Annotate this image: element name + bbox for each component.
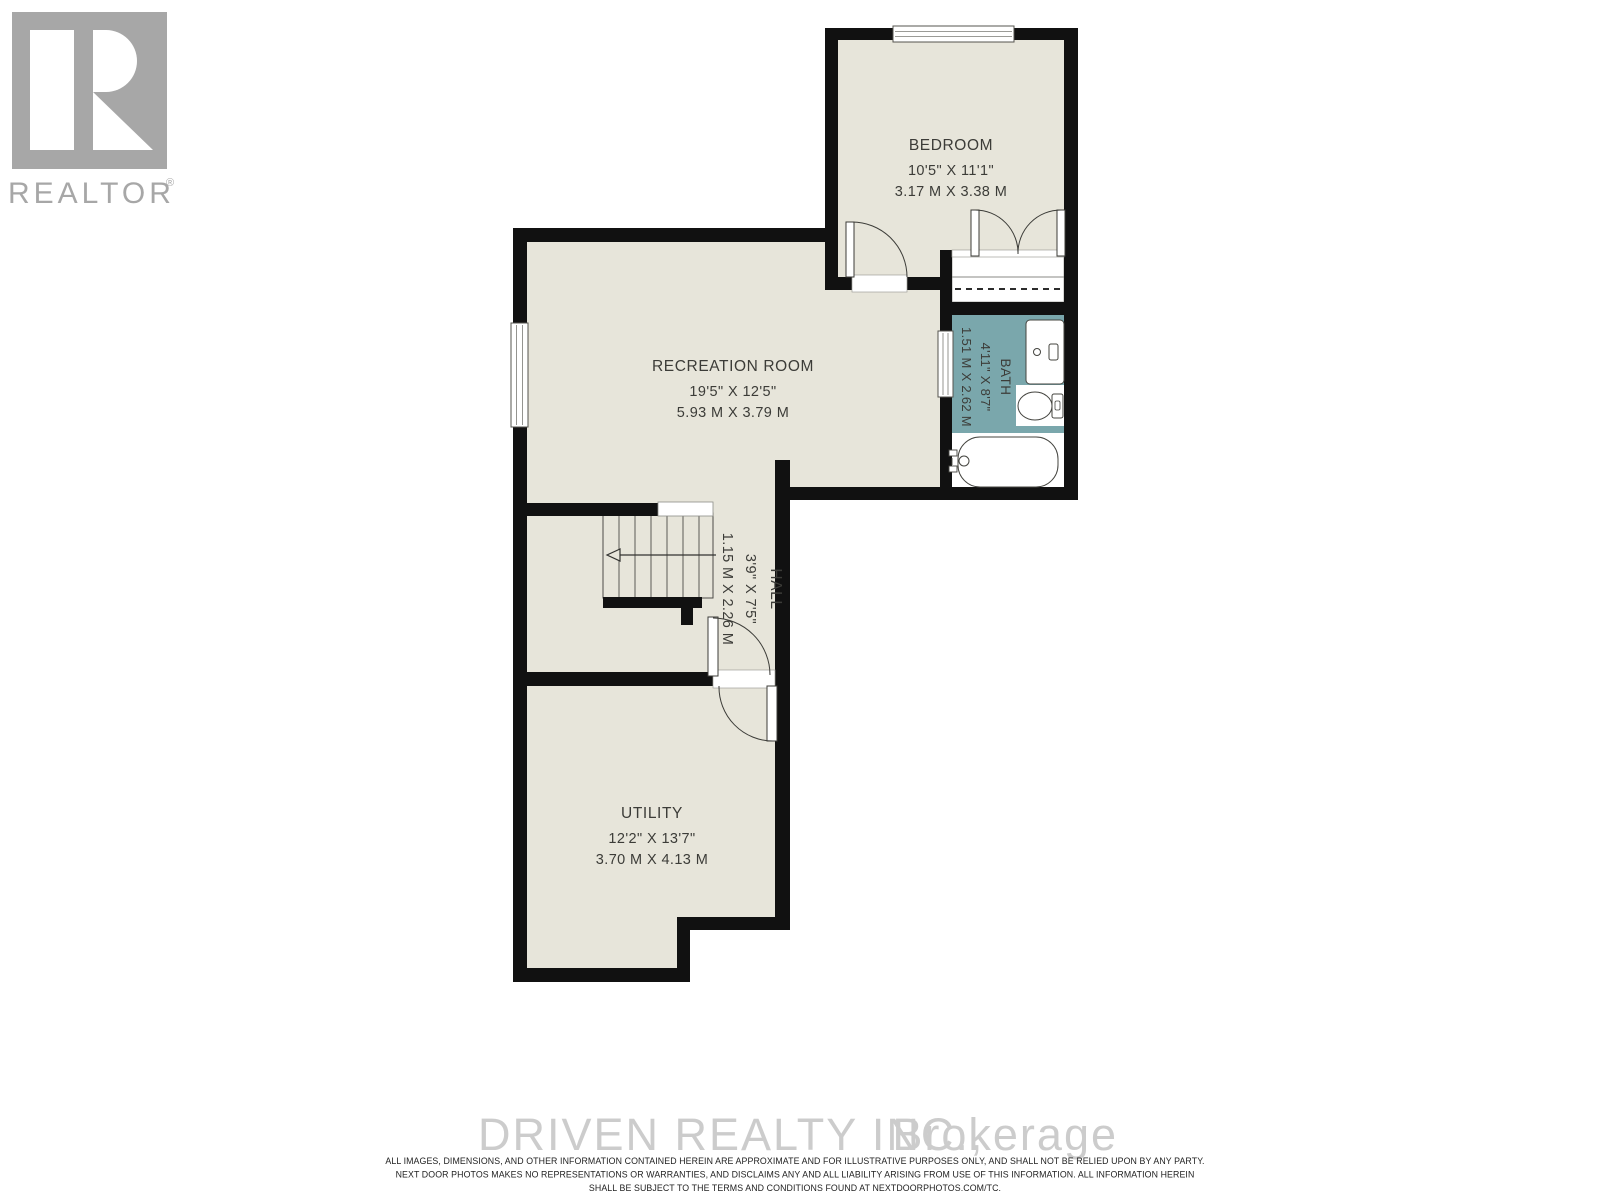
- wall-segment: [681, 597, 693, 625]
- realtor-logo-text: REALTOR: [8, 177, 175, 210]
- door-leaf: [767, 686, 777, 741]
- door-leaf: [708, 617, 718, 676]
- bathtub: [949, 437, 1058, 487]
- door-leaf: [1057, 210, 1065, 256]
- floor-plan-page: BEDROOM 10'5" X 11'1" 3.17 M X 3.38 M RE…: [0, 0, 1600, 1200]
- recreation-window: [511, 323, 528, 427]
- sink: [1026, 320, 1064, 384]
- bedroom-dimensions-imperial: 10'5" X 11'1": [908, 163, 994, 179]
- utility-dimensions-imperial: 12'2" X 13'7": [608, 831, 695, 847]
- wall-segment: [677, 917, 790, 930]
- bath-dimensions-imperial: 4'11" X 8'7": [978, 343, 993, 412]
- disclaimer-line-1: ALL IMAGES, DIMENSIONS, AND OTHER INFORM…: [385, 1156, 1204, 1166]
- wall-segment: [940, 302, 1078, 315]
- stairs-landing-opening: [658, 502, 713, 516]
- bedroom-label-group: BEDROOM 10'5" X 11'1" 3.17 M X 3.38 M: [895, 137, 1007, 200]
- bedroom-window: [893, 26, 1014, 42]
- wall-segment: [513, 228, 527, 323]
- hall-dimensions-imperial: 3'9" X 7'5": [742, 554, 758, 624]
- wall-segment: [513, 228, 838, 242]
- wall-segment: [513, 503, 658, 516]
- floor-plan-svg: BEDROOM 10'5" X 11'1" 3.17 M X 3.38 M RE…: [0, 0, 1600, 1200]
- brokerage-watermark-suffix: Brokerage: [892, 1109, 1118, 1160]
- realtor-logo: REALTOR ®: [8, 12, 175, 210]
- hall-label: HALL: [767, 568, 784, 609]
- closet-floor: [952, 255, 1064, 302]
- utility-floor-lower: [527, 917, 677, 968]
- bedroom-floor: [838, 40, 1064, 277]
- bedroom-label: BEDROOM: [909, 137, 993, 154]
- utility-floor: [527, 686, 775, 917]
- door-leaf: [846, 222, 854, 277]
- hall-door-opening: [713, 670, 775, 688]
- wall-segment: [513, 672, 713, 686]
- recreation-label: RECREATION ROOM: [652, 358, 814, 375]
- bedroom-door-opening: [852, 275, 907, 292]
- bath-label: BATH: [998, 358, 1013, 395]
- closet-door-opening: [952, 250, 1064, 257]
- bath-window: [938, 331, 953, 397]
- hall-dimensions-metric: 1.15 M X 2.26 M: [719, 533, 735, 645]
- disclaimer-line-2: NEXT DOOR PHOTOS MAKES NO REPRESENTATION…: [396, 1170, 1195, 1180]
- door-leaf: [971, 210, 979, 256]
- footer: DRIVEN REALTY INC., Brokerage ALL IMAGES…: [385, 1109, 1204, 1193]
- utility-dimensions-metric: 3.70 M X 4.13 M: [596, 852, 708, 868]
- wall-segment: [825, 28, 838, 290]
- realtor-registered-mark: ®: [166, 177, 174, 189]
- utility-label: UTILITY: [621, 805, 683, 822]
- recreation-dimensions-metric: 5.93 M X 3.79 M: [677, 405, 789, 421]
- stairs: [603, 513, 716, 598]
- disclaimer-line-3: SHALL BE SUBJECT TO THE TERMS AND CONDIT…: [589, 1183, 1001, 1193]
- wall-segment: [940, 250, 952, 333]
- recreation-dimensions-imperial: 19'5" X 12'5": [689, 384, 776, 400]
- wall-segment: [940, 396, 952, 500]
- toilet: [1016, 385, 1064, 426]
- recreation-floor-lower: [527, 487, 775, 503]
- wall-segment: [775, 487, 1078, 500]
- wall-segment: [1064, 28, 1078, 500]
- bedroom-dimensions-metric: 3.17 M X 3.38 M: [895, 184, 1007, 200]
- wall-segment: [513, 968, 690, 982]
- bath-dimensions-metric: 1.51 M X 2.62 M: [959, 327, 974, 427]
- bedroom-closet: [952, 255, 1064, 302]
